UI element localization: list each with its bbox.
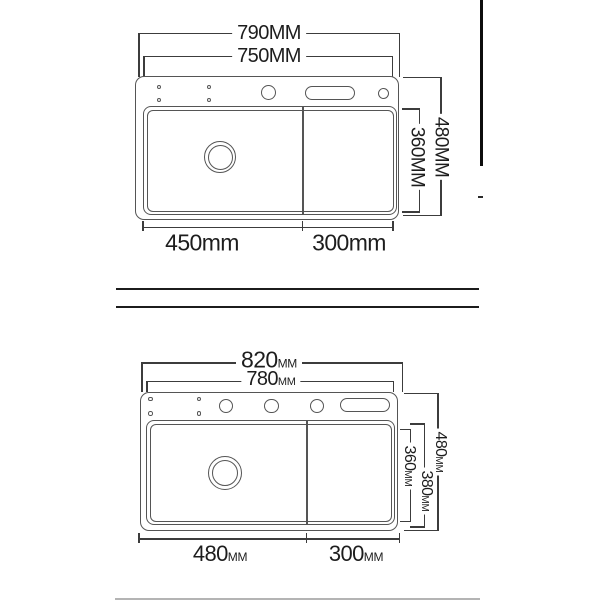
extension-line: [138, 33, 140, 77]
basin-divider: [302, 107, 304, 214]
bracket-line: [410, 526, 425, 528]
bracket-line: [404, 530, 438, 532]
dimension-tick: [302, 221, 304, 231]
bracket-line: [402, 108, 420, 110]
right-edge-bar: [480, 0, 483, 166]
section-divider-line-gray: [115, 598, 480, 600]
small-dash-mark: [478, 196, 484, 198]
dim-label-mid-height: 380MM: [418, 468, 434, 515]
drain-hole-inner: [208, 145, 233, 170]
mounting-hole: [148, 411, 153, 416]
mounting-hole: [197, 411, 202, 416]
drain-hole-inner: [212, 460, 238, 486]
extension-line: [399, 33, 401, 77]
soap-dispenser-hole: [378, 88, 389, 99]
dim-label-outer-width: 790MM: [232, 23, 306, 43]
dimension-tick: [392, 221, 394, 231]
bracket-line: [403, 215, 441, 217]
extension-line: [393, 381, 395, 392]
dim-label-inner-width: 750MM: [232, 46, 306, 66]
diagram-canvas: 790MM 750MM 480MM 360MM: [0, 0, 600, 600]
faucet-hole: [264, 399, 279, 414]
dimension-tick: [306, 533, 308, 543]
dimension-line: [142, 227, 393, 229]
dimension-tick: [142, 221, 144, 231]
mounting-hole: [148, 397, 153, 402]
faucet-hole: [261, 85, 276, 100]
bracket-line: [404, 393, 438, 395]
dim-label-right-bottom-width: 300mm: [307, 232, 391, 255]
accessory-tray: [305, 86, 355, 100]
dimension-line: [138, 538, 400, 540]
section-divider-line-2: [116, 306, 479, 308]
section-divider-line-1: [116, 288, 479, 290]
dim-label-left-bottom-width: 480MM: [188, 543, 252, 565]
bracket-line: [410, 423, 425, 425]
extension-line: [146, 381, 148, 392]
dim-label-outer-height: 480MM: [432, 114, 451, 180]
bracket-line: [403, 77, 441, 79]
accessory-tray: [340, 398, 390, 412]
extension-line: [392, 56, 394, 77]
basin-rim-line: [147, 110, 394, 212]
dim-label-left-bottom-width: 450mm: [160, 232, 244, 255]
dim-label-inner-height: 360MM: [401, 443, 417, 490]
dim-label-outer-height: 480MM: [432, 429, 448, 476]
basin-rim-line: [150, 424, 392, 522]
extension-line: [141, 362, 143, 392]
extension-line: [402, 362, 404, 392]
basin-divider: [306, 421, 308, 524]
extension-line: [143, 56, 145, 77]
bracket-line: [402, 211, 420, 213]
dim-label-right-bottom-width: 300MM: [324, 543, 388, 565]
dimension-tick: [399, 533, 401, 543]
dim-label-inner-height: 360MM: [408, 124, 427, 190]
dimension-tick: [138, 533, 140, 543]
dim-label-inner-width: 780MM: [241, 369, 300, 389]
bracket-line: [400, 521, 411, 523]
